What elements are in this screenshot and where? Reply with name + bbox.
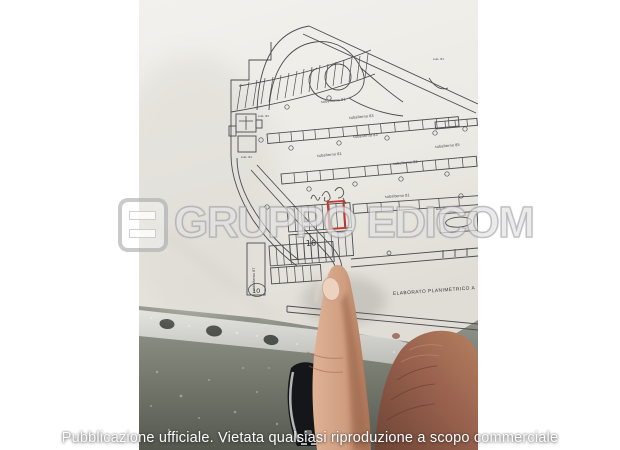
photo-of-plan: subalterno 81 subalterno 83 subalterno 8…	[139, 0, 478, 450]
handwritten-circled-number: 10	[252, 287, 260, 295]
label-micro-2: sub. 81	[258, 114, 269, 118]
label-micro-3: sub. 61	[241, 155, 252, 159]
handwritten-count: 16	[306, 238, 317, 248]
label-right-block: sub. 84	[436, 206, 447, 211]
paper-hole	[392, 333, 400, 339]
copyright-caption: Pubblicazione ufficiale. Vietata qualsia…	[0, 430, 620, 446]
screenshot-canvas: subalterno 81 subalterno 83 subalterno 8…	[0, 0, 620, 450]
photo-scene: subalterno 81 subalterno 83 subalterno 8…	[139, 0, 478, 450]
label-micro-1: sub. 81	[433, 57, 444, 61]
